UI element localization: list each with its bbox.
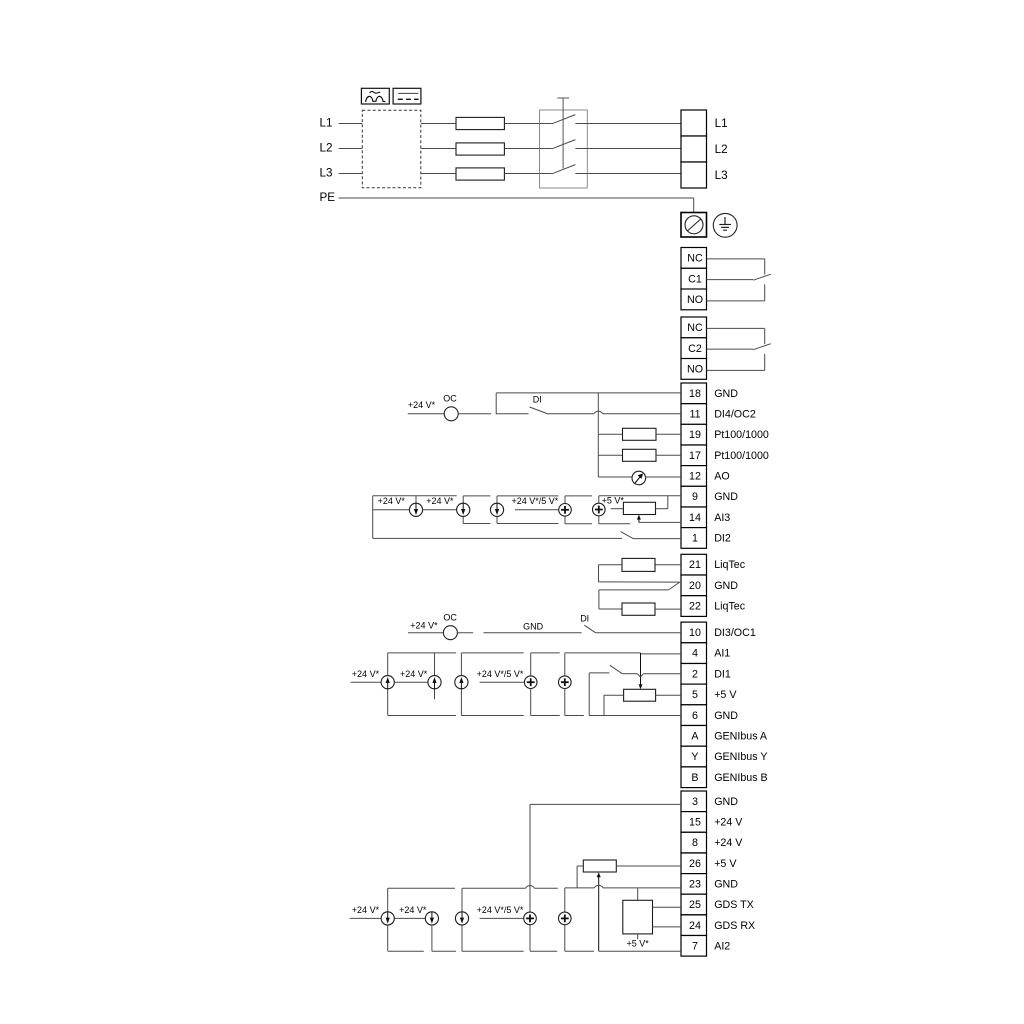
svg-text:NO: NO [687,294,703,306]
svg-text:22: 22 [689,601,701,613]
svg-text:1: 1 [692,533,698,545]
svg-text:Pt100/1000: Pt100/1000 [714,450,769,462]
svg-text:NO: NO [687,364,703,376]
svg-text:+5 V: +5 V [714,858,737,870]
svg-text:L3: L3 [320,167,333,180]
svg-text:L3: L3 [715,169,728,182]
svg-text:18: 18 [689,388,701,400]
svg-text:NC: NC [687,322,703,334]
svg-text:23: 23 [689,879,701,891]
svg-text:24: 24 [689,920,701,932]
svg-text:GND: GND [714,388,738,400]
svg-text:+24 V*: +24 V* [426,496,454,506]
svg-text:GND: GND [714,796,738,808]
svg-text:C2: C2 [688,343,702,355]
svg-text:AI3: AI3 [714,512,730,524]
svg-text:GDS TX: GDS TX [714,899,754,911]
svg-text:2: 2 [692,668,698,680]
svg-text:9: 9 [692,491,698,503]
svg-text:5: 5 [692,689,698,701]
svg-text:+24 V*: +24 V* [408,400,436,410]
svg-text:+24 V*: +24 V* [400,669,428,679]
svg-text:+5 V*: +5 V* [602,496,625,506]
svg-text:26: 26 [689,858,701,870]
svg-text:+24 V: +24 V [714,837,743,849]
svg-text:LiqTec: LiqTec [714,601,746,613]
svg-text:+24 V*: +24 V* [410,620,438,630]
svg-text:DI: DI [580,614,589,624]
svg-text:+5 V: +5 V [714,689,737,701]
svg-text:L2: L2 [320,142,333,155]
svg-text:14: 14 [689,512,701,524]
svg-text:AI1: AI1 [714,648,730,660]
svg-text:AI2: AI2 [714,941,730,953]
svg-text:Y: Y [691,751,698,763]
svg-text:+24 V*/5 V*: +24 V*/5 V* [477,669,524,679]
svg-text:GDS RX: GDS RX [714,920,755,932]
svg-text:AO: AO [714,471,729,483]
svg-text:DI: DI [533,394,542,404]
svg-text:4: 4 [692,648,698,660]
svg-text:8: 8 [692,837,698,849]
svg-text:+24 V*/5 V*: +24 V*/5 V* [512,496,559,506]
svg-text:B: B [691,772,698,784]
svg-text:GND: GND [523,622,544,632]
svg-text:11: 11 [689,409,700,421]
svg-text:NC: NC [687,253,703,265]
svg-text:+5 V*: +5 V* [627,939,650,949]
svg-text:+24 V*/5 V*: +24 V*/5 V* [477,905,524,915]
svg-text:7: 7 [692,941,698,953]
svg-text:L2: L2 [715,143,728,156]
svg-text:DI3/OC1: DI3/OC1 [714,627,756,639]
svg-text:GENIbus A: GENIbus A [714,730,768,742]
svg-text:GND: GND [714,491,738,503]
svg-text:GND: GND [714,580,738,592]
svg-text:15: 15 [689,817,701,829]
svg-text:GND: GND [714,879,738,891]
svg-text:20: 20 [689,580,701,592]
svg-text:+24 V*: +24 V* [378,496,406,506]
svg-text:17: 17 [689,450,701,462]
svg-text:GENIbus B: GENIbus B [714,772,767,784]
svg-text:+24 V*: +24 V* [352,669,380,679]
svg-text:6: 6 [692,710,698,722]
svg-text:12: 12 [689,471,701,483]
svg-text:GENIbus Y: GENIbus Y [714,751,767,763]
svg-text:OC: OC [443,394,457,404]
svg-text:C1: C1 [688,273,702,285]
svg-text:3: 3 [692,796,698,808]
svg-text:L1: L1 [320,117,333,130]
svg-text:DI1: DI1 [714,668,731,680]
svg-text:19: 19 [689,429,701,441]
svg-text:LiqTec: LiqTec [714,559,746,571]
svg-text:DI4/OC2: DI4/OC2 [714,409,756,421]
svg-text:A: A [691,730,699,742]
svg-text:DI2: DI2 [714,533,731,545]
svg-text:+24 V*: +24 V* [399,905,427,915]
svg-text:10: 10 [689,627,701,639]
svg-text:21: 21 [689,559,701,571]
svg-text:OC: OC [443,612,457,622]
svg-text:L1: L1 [715,117,728,130]
svg-text:Pt100/1000: Pt100/1000 [714,429,769,441]
svg-text:PE: PE [320,191,336,204]
svg-text:GND: GND [714,710,738,722]
svg-text:+24 V: +24 V [714,817,743,829]
svg-text:+24 V*: +24 V* [352,905,380,915]
svg-text:25: 25 [689,899,701,911]
